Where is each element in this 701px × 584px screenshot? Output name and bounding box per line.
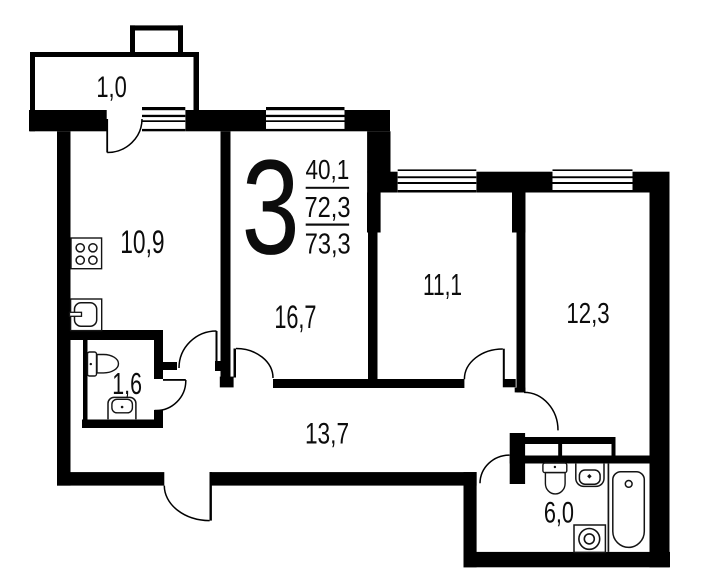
- svg-text:11,1: 11,1: [423, 267, 462, 302]
- svg-text:13,7: 13,7: [305, 417, 349, 451]
- svg-text:73,3: 73,3: [305, 227, 351, 260]
- svg-text:16,7: 16,7: [274, 299, 316, 335]
- svg-text:40,1: 40,1: [305, 155, 349, 186]
- svg-text:3: 3: [242, 132, 300, 283]
- svg-text:72,3: 72,3: [305, 190, 351, 223]
- svg-text:6,0: 6,0: [544, 495, 574, 529]
- svg-text:1,6: 1,6: [112, 366, 142, 401]
- svg-text:12,3: 12,3: [566, 298, 609, 329]
- svg-text:1,0: 1,0: [96, 70, 126, 104]
- svg-text:10,9: 10,9: [120, 224, 164, 260]
